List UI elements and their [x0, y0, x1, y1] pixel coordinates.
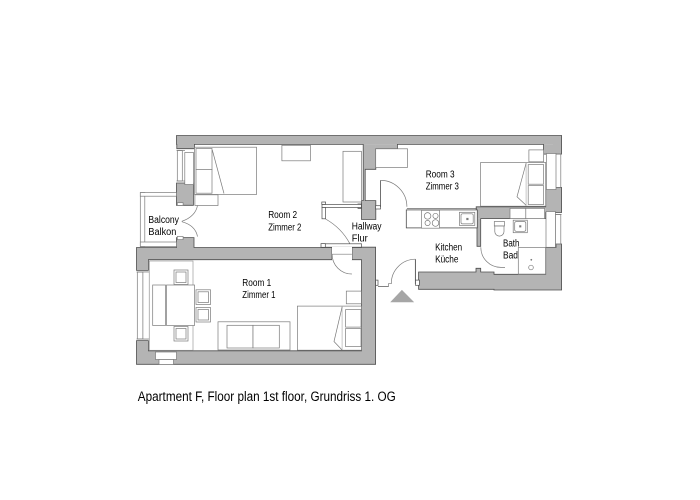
svg-text:Room 3: Room 3	[426, 170, 455, 181]
svg-text:Zimmer 1: Zimmer 1	[242, 290, 276, 301]
svg-text:Room 2: Room 2	[268, 210, 297, 221]
svg-text:Hallway: Hallway	[352, 222, 382, 233]
svg-text:Kitchen: Kitchen	[435, 243, 462, 254]
svg-text:Zimmer 3: Zimmer 3	[426, 182, 460, 193]
svg-text:Zimmer 2: Zimmer 2	[268, 222, 301, 233]
svg-text:Bath: Bath	[503, 239, 520, 250]
svg-text:Apartment F, Floor plan 1st fl: Apartment F, Floor plan 1st floor, Grund…	[138, 389, 396, 405]
svg-text:Balkon: Balkon	[148, 227, 176, 238]
svg-text:Balcony: Balcony	[148, 215, 179, 226]
svg-text:Flur: Flur	[352, 234, 369, 245]
svg-text:Küche: Küche	[435, 255, 459, 266]
svg-text:Room 1: Room 1	[242, 278, 271, 289]
svg-text:Bad: Bad	[503, 251, 518, 262]
